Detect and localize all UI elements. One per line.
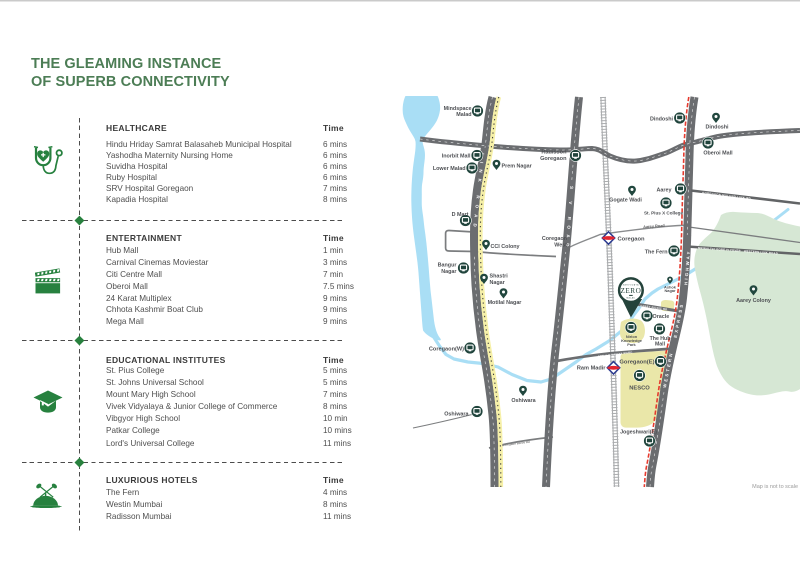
svg-text:MALAD: MALAD (627, 297, 636, 300)
svg-text:SARVODAYA: SARVODAYA (623, 284, 639, 287)
svg-text:Lower Malad: Lower Malad (433, 166, 466, 172)
svg-text:Aarey: Aarey (657, 187, 672, 193)
svg-text:Goregaon: Goregaon (540, 156, 567, 162)
svg-text:St. Pius X College: St. Pius X College (644, 211, 684, 216)
svg-text:Coregaon: Coregaon (542, 236, 567, 242)
svg-text:The Fern: The Fern (645, 249, 668, 255)
svg-text:Coregaon(W): Coregaon(W) (429, 347, 464, 353)
svg-text:Prem Nagar: Prem Nagar (502, 164, 533, 170)
svg-text:Radisson: Radisson (541, 150, 567, 156)
svg-text:Coregaon: Coregaon (618, 236, 646, 242)
svg-text:Motilal Nagar: Motilal Nagar (488, 300, 523, 306)
svg-text:Nagar: Nagar (441, 269, 457, 275)
svg-text:Mall: Mall (655, 342, 666, 348)
svg-text:NESCO: NESCO (629, 385, 650, 391)
svg-text:Oracle: Oracle (653, 314, 670, 320)
svg-text:Inorbit Mall: Inorbit Mall (442, 154, 471, 160)
svg-text:Oberoi Mall: Oberoi Mall (703, 151, 733, 157)
svg-text:Bangur: Bangur (438, 263, 458, 269)
svg-text:Nagar: Nagar (490, 280, 506, 286)
svg-text:Mindspace: Mindspace (444, 106, 472, 112)
svg-text:Goregaon(E): Goregaon(E) (619, 360, 654, 366)
svg-text:Map is not to scale: Map is not to scale (752, 484, 798, 490)
svg-text:Aarey Road: Aarey Road (643, 223, 666, 230)
svg-text:Dindoshi: Dindoshi (705, 124, 729, 130)
svg-text:Park: Park (627, 342, 636, 347)
svg-text:Jogeshwari(E): Jogeshwari(E) (620, 430, 657, 436)
svg-text:Dindoshi: Dindoshi (650, 116, 674, 122)
svg-text:Oshiwara: Oshiwara (444, 412, 469, 418)
svg-text:Gogate Wadi: Gogate Wadi (609, 198, 642, 204)
svg-text:Malad: Malad (456, 112, 471, 118)
svg-text:Shastri: Shastri (490, 274, 509, 280)
svg-text:CCI Colony: CCI Colony (491, 244, 520, 250)
svg-text:D Mart: D Mart (452, 212, 469, 218)
svg-text:Oshiwara: Oshiwara (511, 398, 536, 404)
svg-text:Aarey Colony: Aarey Colony (736, 298, 771, 304)
svg-text:West: West (554, 242, 567, 248)
svg-text:Ram Madir: Ram Madir (577, 365, 606, 371)
svg-text:ZERO: ZERO (621, 287, 642, 295)
svg-text:Goregaon Barve Rd: Goregaon Barve Rd (502, 440, 531, 447)
svg-text:Nagar: Nagar (664, 288, 676, 293)
